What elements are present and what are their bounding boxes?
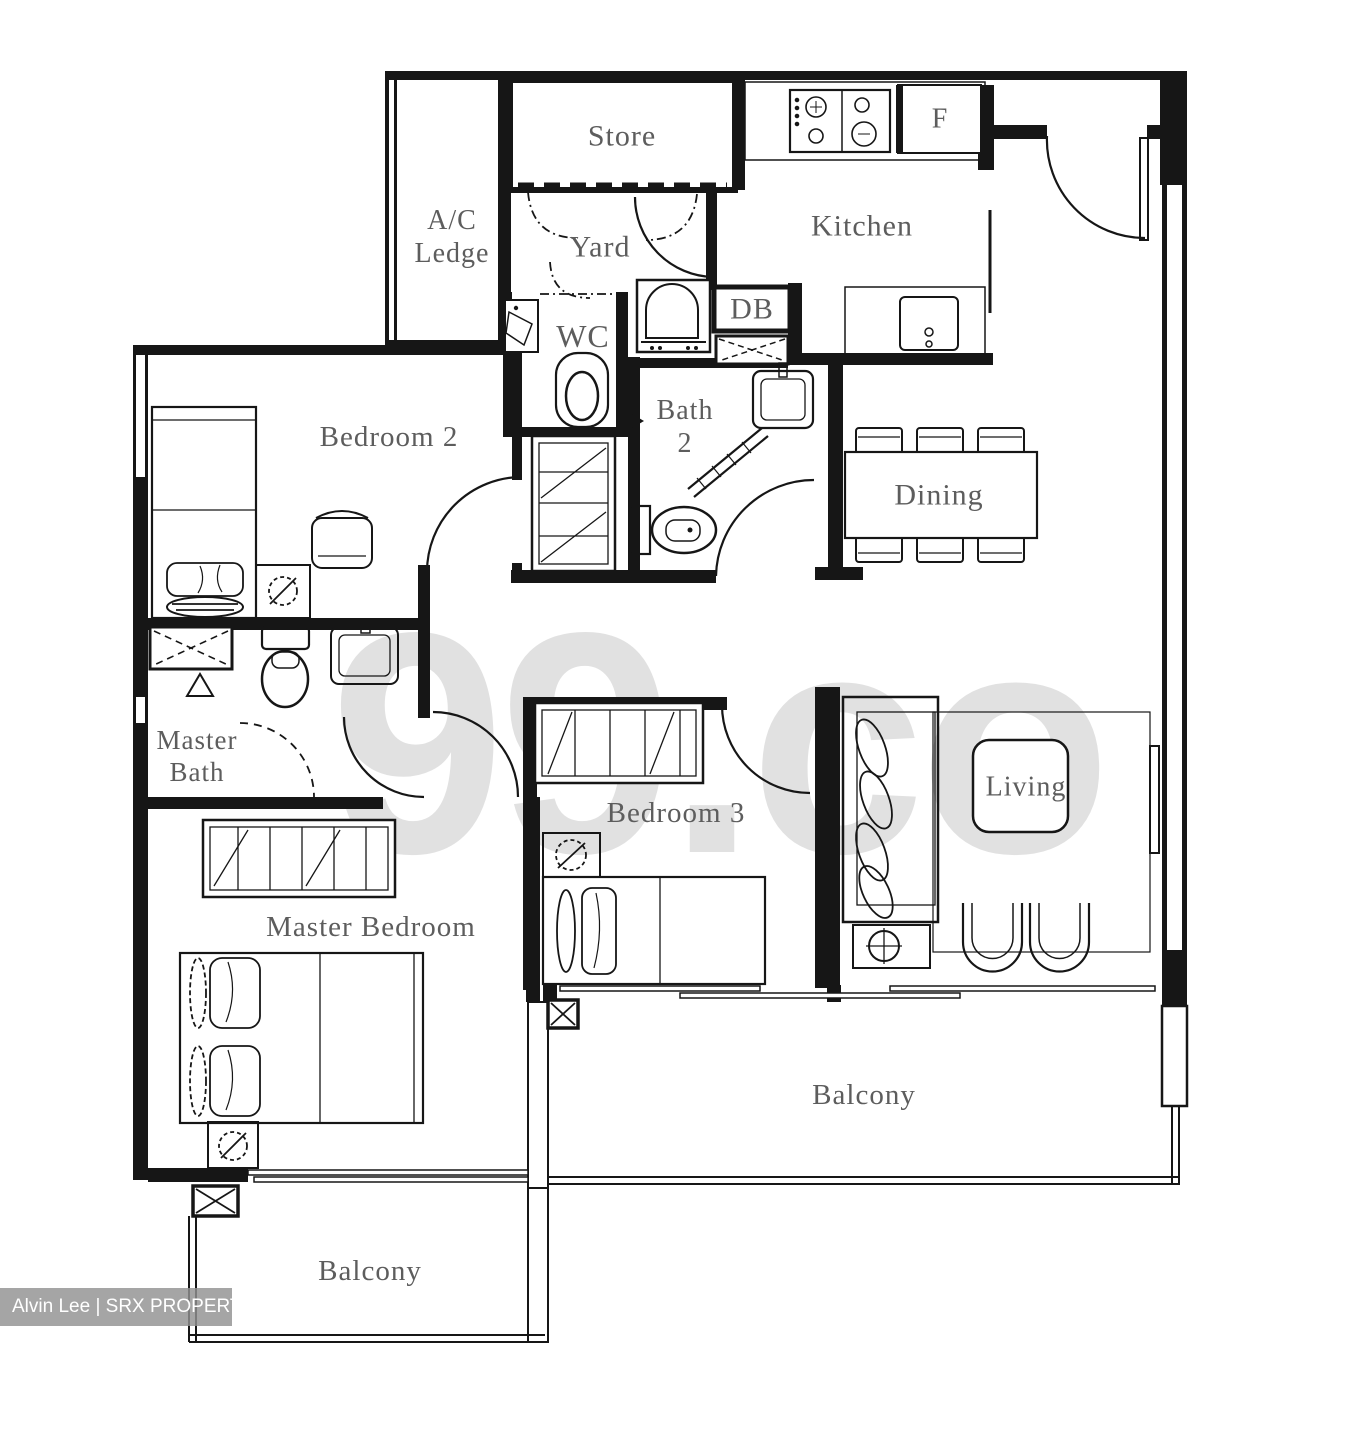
room-label-bath2: Bath 2 xyxy=(657,394,714,460)
credit-bar: Alvin Lee | SRX PROPERTY xyxy=(0,1288,232,1326)
hollow-walls xyxy=(528,1002,1187,1342)
master-bedroom-door xyxy=(433,712,518,797)
sliding-doors xyxy=(248,986,1155,1182)
room-label-balcony-master: Balcony xyxy=(318,1254,422,1288)
room-label-living: Living xyxy=(986,770,1067,803)
floor-plan: 99.co xyxy=(0,0,1347,1440)
floor-plan-drawing xyxy=(0,0,1347,1440)
bedroom2-wardrobe-icon xyxy=(532,436,615,571)
kitchen-door xyxy=(635,197,713,277)
washing-machine-icon xyxy=(637,280,710,352)
room-label-master-bedroom: Master Bedroom xyxy=(266,910,476,944)
stove-icon xyxy=(790,90,890,152)
room-label-bedroom3: Bedroom 3 xyxy=(607,796,746,830)
room-label-master-bath: Master Bath xyxy=(157,725,238,789)
room-label-bedroom2: Bedroom 2 xyxy=(320,420,459,454)
room-label-db: DB xyxy=(730,291,774,326)
room-label-wc: WC xyxy=(556,318,610,356)
room-label-fridge: F xyxy=(932,102,949,135)
room-label-dining: Dining xyxy=(894,477,983,512)
column-icon xyxy=(193,1000,578,1216)
living-furniture xyxy=(843,697,1159,972)
tv-icon xyxy=(1150,746,1159,853)
entry-door xyxy=(1047,136,1148,240)
balcony-railings xyxy=(189,1107,1180,1342)
room-label-ac-ledge: A/C Ledge xyxy=(415,204,490,270)
bedroom3-furniture xyxy=(535,703,810,984)
room-label-kitchen: Kitchen xyxy=(811,208,913,243)
credit-text: Alvin Lee | SRX PROPERTY xyxy=(0,1296,254,1318)
master-bedroom-furniture xyxy=(180,820,423,1168)
room-label-balcony-main: Balcony xyxy=(812,1078,916,1112)
room-label-store: Store xyxy=(588,118,656,153)
room-label-yard: Yard xyxy=(570,229,631,264)
